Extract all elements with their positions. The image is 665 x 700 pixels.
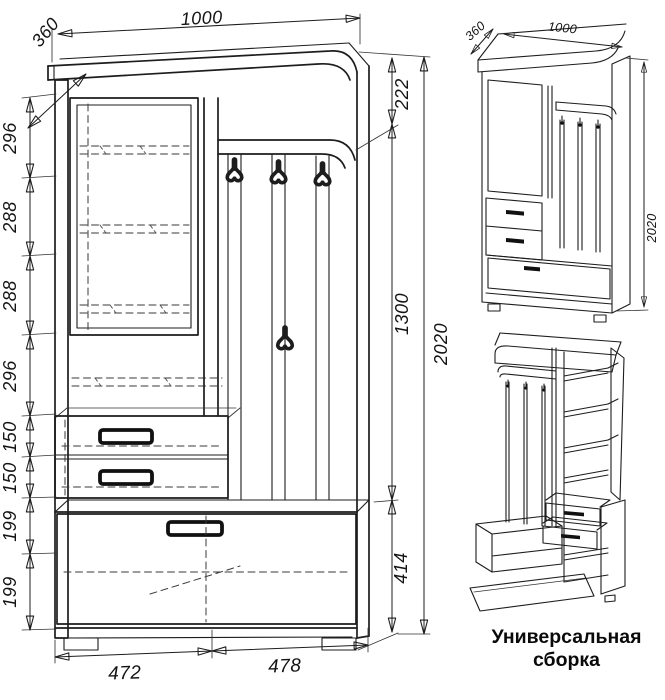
coat-hook-icon — [227, 160, 242, 181]
iso2-unit — [470, 333, 625, 611]
dim-bottom-left: 472 — [108, 662, 142, 684]
caption-line-1: Универсальная — [468, 626, 665, 649]
left-dimension-chain: 296 288 288 296 150 150 199 199 — [0, 94, 56, 630]
iso2-hooks — [506, 380, 545, 392]
coat-hook-icon — [271, 162, 286, 183]
dim-hat-shelf: 222 — [392, 78, 412, 111]
iso-mirror — [488, 80, 542, 196]
dim-left-2: 288 — [0, 280, 20, 313]
iso-hooks — [560, 116, 600, 129]
iso-unit — [478, 24, 630, 322]
drawer-unit — [55, 408, 240, 498]
iso-drawer-handle — [506, 210, 524, 216]
hidden-shelf-lines — [80, 104, 189, 330]
furniture-drawing-sheet: 1000 360 — [0, 0, 665, 700]
coat-hook-icon — [278, 328, 293, 349]
mirror-panel — [70, 98, 198, 335]
base-cabinet — [55, 500, 369, 638]
iso-drawer-handle — [506, 238, 524, 244]
iso-dim-height: 2020 — [645, 213, 659, 243]
iso-door-handle — [524, 266, 540, 271]
dim-left-4: 150 — [0, 421, 20, 453]
right-dimension-chain: 222 1300 414 2020 — [356, 52, 451, 650]
top-canopy — [48, 43, 357, 80]
dim-base-height: 414 — [391, 552, 411, 584]
iso2-side-panel — [611, 348, 624, 500]
drawer-handle — [100, 471, 152, 484]
front-view-drawing: 1000 360 — [0, 0, 470, 700]
drawer-handle — [100, 430, 152, 443]
dim-left-3: 296 — [0, 360, 20, 393]
iso2-bottom-flap — [470, 574, 594, 611]
dim-left-1: 288 — [0, 201, 20, 234]
dim-hook-panel: 1300 — [392, 293, 412, 335]
iso2-shelves — [564, 363, 618, 582]
dim-left-7: 199 — [0, 576, 20, 608]
open-niche — [72, 378, 222, 386]
right-side-panel — [349, 43, 369, 638]
iso-view-universal — [468, 330, 665, 630]
hook-board-slats — [228, 154, 329, 500]
dim-bottom-right: 478 — [268, 655, 302, 677]
iso-dim-width: 1000 — [547, 20, 577, 37]
hat-shelf — [218, 140, 355, 168]
bottom-dimensions: 472 478 — [55, 628, 368, 685]
caption-line-2: сборка — [468, 649, 665, 672]
feet — [64, 638, 356, 650]
dim-top-width: 1000 — [180, 7, 223, 29]
dim-top-depth: 360 — [28, 14, 64, 51]
centre-post — [204, 98, 218, 416]
dim-left-5: 150 — [0, 462, 20, 494]
iso-view-assembled: 360 1000 2020 — [468, 8, 665, 330]
dim-left-6: 199 — [0, 510, 20, 542]
door-handle — [168, 522, 222, 535]
coat-hook-icon — [315, 164, 330, 185]
hallway-unit-front — [48, 43, 369, 650]
dim-left-0: 296 — [0, 122, 20, 155]
caption-universal-assembly: Универсальная сборка — [468, 626, 665, 672]
dim-overall-height: 2020 — [431, 323, 451, 366]
